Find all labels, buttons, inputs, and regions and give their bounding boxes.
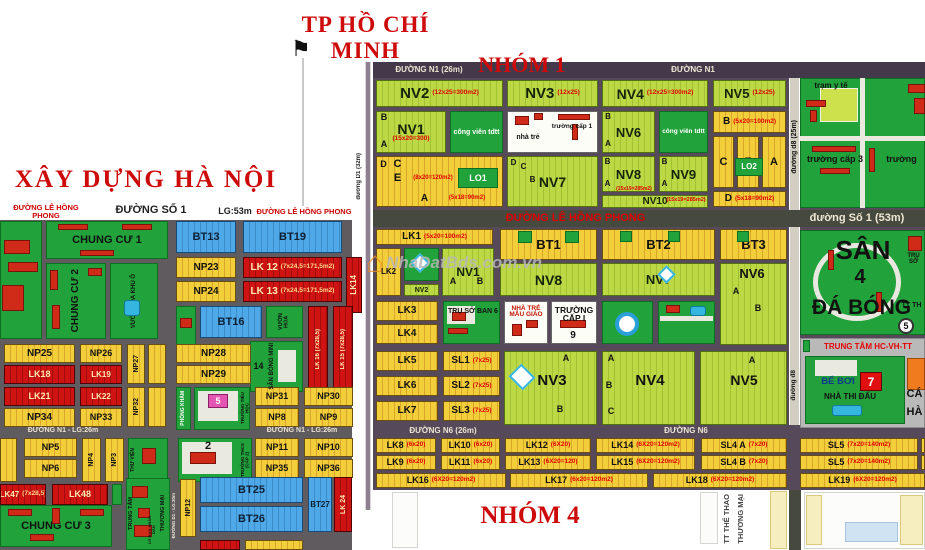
- group4-title: NHÓM 4: [425, 502, 635, 530]
- vlbl-ttthethao-2: THƯƠNG MẠI: [735, 490, 747, 548]
- fainty-2: [806, 495, 822, 545]
- fainty-1: [770, 491, 787, 549]
- faint-grid-right: [804, 492, 925, 549]
- road-mid-v: [365, 62, 371, 510]
- right-map-panel: [373, 62, 925, 490]
- road-lhp-label-right: ĐƯỜNG LÊ HỒNG PHONG: [253, 206, 355, 217]
- faint-strip-2: [700, 492, 718, 544]
- road-lhp-label-left: ĐƯỜNG LÊ HỒNG PHONG: [0, 206, 92, 217]
- vlbl-duong-d1-32: đường D1 (32m): [354, 130, 364, 222]
- boundary-line: [302, 58, 304, 206]
- left-map-panel: [0, 220, 352, 550]
- group1-title: NHÓM 1: [462, 52, 582, 78]
- road-dark-bottom: [789, 490, 801, 550]
- left-area-title: XÂY DỰNG HÀ NỘI: [6, 166, 286, 194]
- faintb-1: [845, 522, 898, 542]
- road-so1-label: ĐƯỜNG SỐ 1: [95, 204, 207, 217]
- road-lg53-label: LG:53m: [210, 206, 260, 217]
- faint-strip-1: [392, 492, 418, 548]
- north-flag-icon: ⚑: [291, 36, 311, 62]
- fainty-3: [900, 495, 923, 545]
- vlbl-ttthethao-1: TT THỂ THAO: [721, 490, 733, 548]
